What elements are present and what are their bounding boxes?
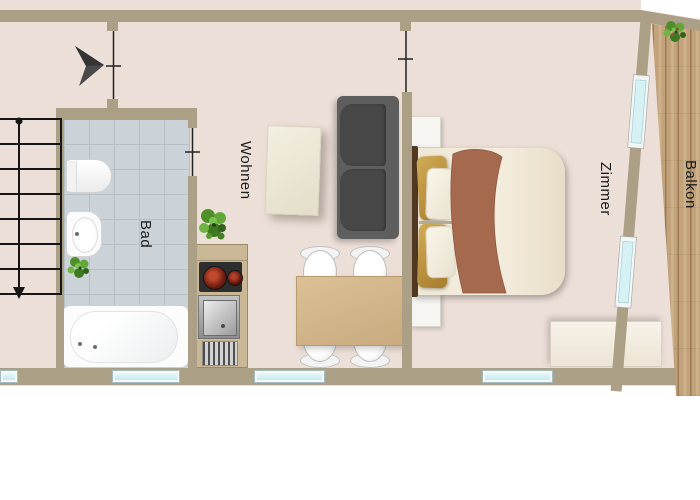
washbasin	[66, 211, 102, 257]
bed-frame-bar	[419, 221, 453, 224]
burner-large-icon	[203, 266, 227, 290]
sink-drain-dot	[221, 324, 225, 328]
bed-pillow-white	[425, 226, 456, 279]
burner-small-icon	[227, 270, 243, 286]
room-label-wohnen: Wohnen	[237, 141, 254, 200]
floor-plan: Bad Wohnen Zimmer Balkon	[0, 0, 700, 500]
toilet	[66, 159, 112, 193]
room-label-balkon: Balkon	[682, 160, 699, 209]
wall-bathroom-right-stub	[188, 119, 197, 128]
window-bottom-2	[112, 370, 180, 383]
room-label-bad: Bad	[137, 220, 154, 248]
stove	[199, 262, 242, 292]
bathtub-basin	[70, 311, 178, 363]
sofa-cushion	[340, 104, 386, 166]
window-bottom-1	[0, 370, 18, 383]
window-bottom-3	[254, 370, 325, 383]
wall-bottom	[0, 368, 676, 385]
bathtub	[62, 305, 189, 368]
kitchen-sink	[198, 295, 240, 339]
nightstand	[410, 116, 441, 148]
wall-living-bedroom	[402, 92, 412, 368]
window-bottom-4	[482, 370, 553, 383]
sofa	[337, 96, 399, 239]
washbasin-drain-dot	[75, 232, 79, 236]
dining-table	[296, 276, 403, 346]
wall-bathroom-left	[56, 108, 64, 368]
nightstand	[410, 294, 441, 327]
drain-dot	[93, 345, 97, 349]
faucet-dot	[78, 342, 82, 346]
sideboard	[550, 321, 662, 367]
wall-bathroom-top	[56, 108, 197, 120]
bed-pillow-white	[425, 168, 456, 221]
toilet-tank	[67, 161, 77, 191]
wall-bathroom-right	[188, 176, 197, 368]
sink-drainer	[202, 341, 238, 366]
sofa-cushion	[340, 169, 386, 231]
sink-bowl	[203, 300, 237, 336]
room-label-zimmer: Zimmer	[597, 162, 614, 216]
coffee-table	[264, 125, 321, 216]
